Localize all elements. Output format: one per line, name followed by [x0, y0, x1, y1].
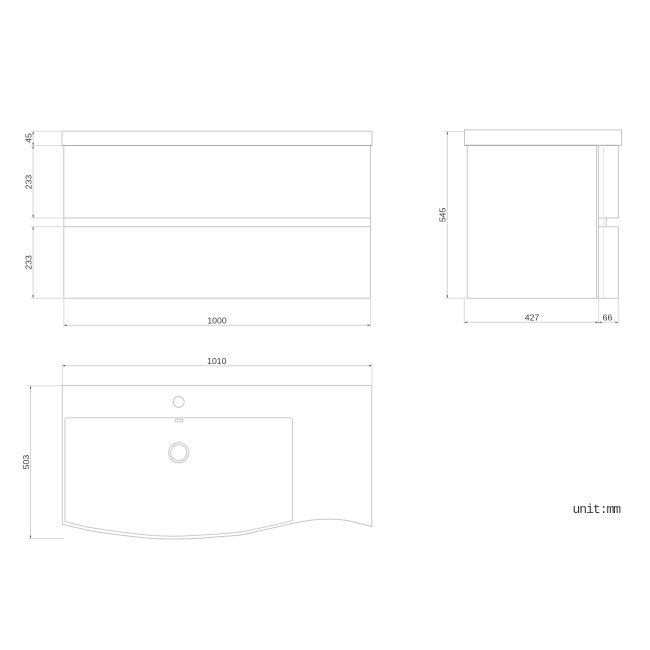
svg-text:503: 503	[21, 455, 31, 470]
svg-text:45: 45	[24, 133, 34, 143]
svg-text:66: 66	[603, 312, 613, 322]
svg-text:427: 427	[525, 312, 540, 322]
svg-text:233: 233	[24, 255, 34, 270]
svg-text:unit:mm: unit:mm	[573, 502, 622, 517]
svg-text:545: 545	[438, 207, 448, 222]
svg-text:1000: 1000	[207, 315, 226, 325]
svg-text:1010: 1010	[207, 356, 226, 366]
svg-text:233: 233	[24, 175, 34, 190]
